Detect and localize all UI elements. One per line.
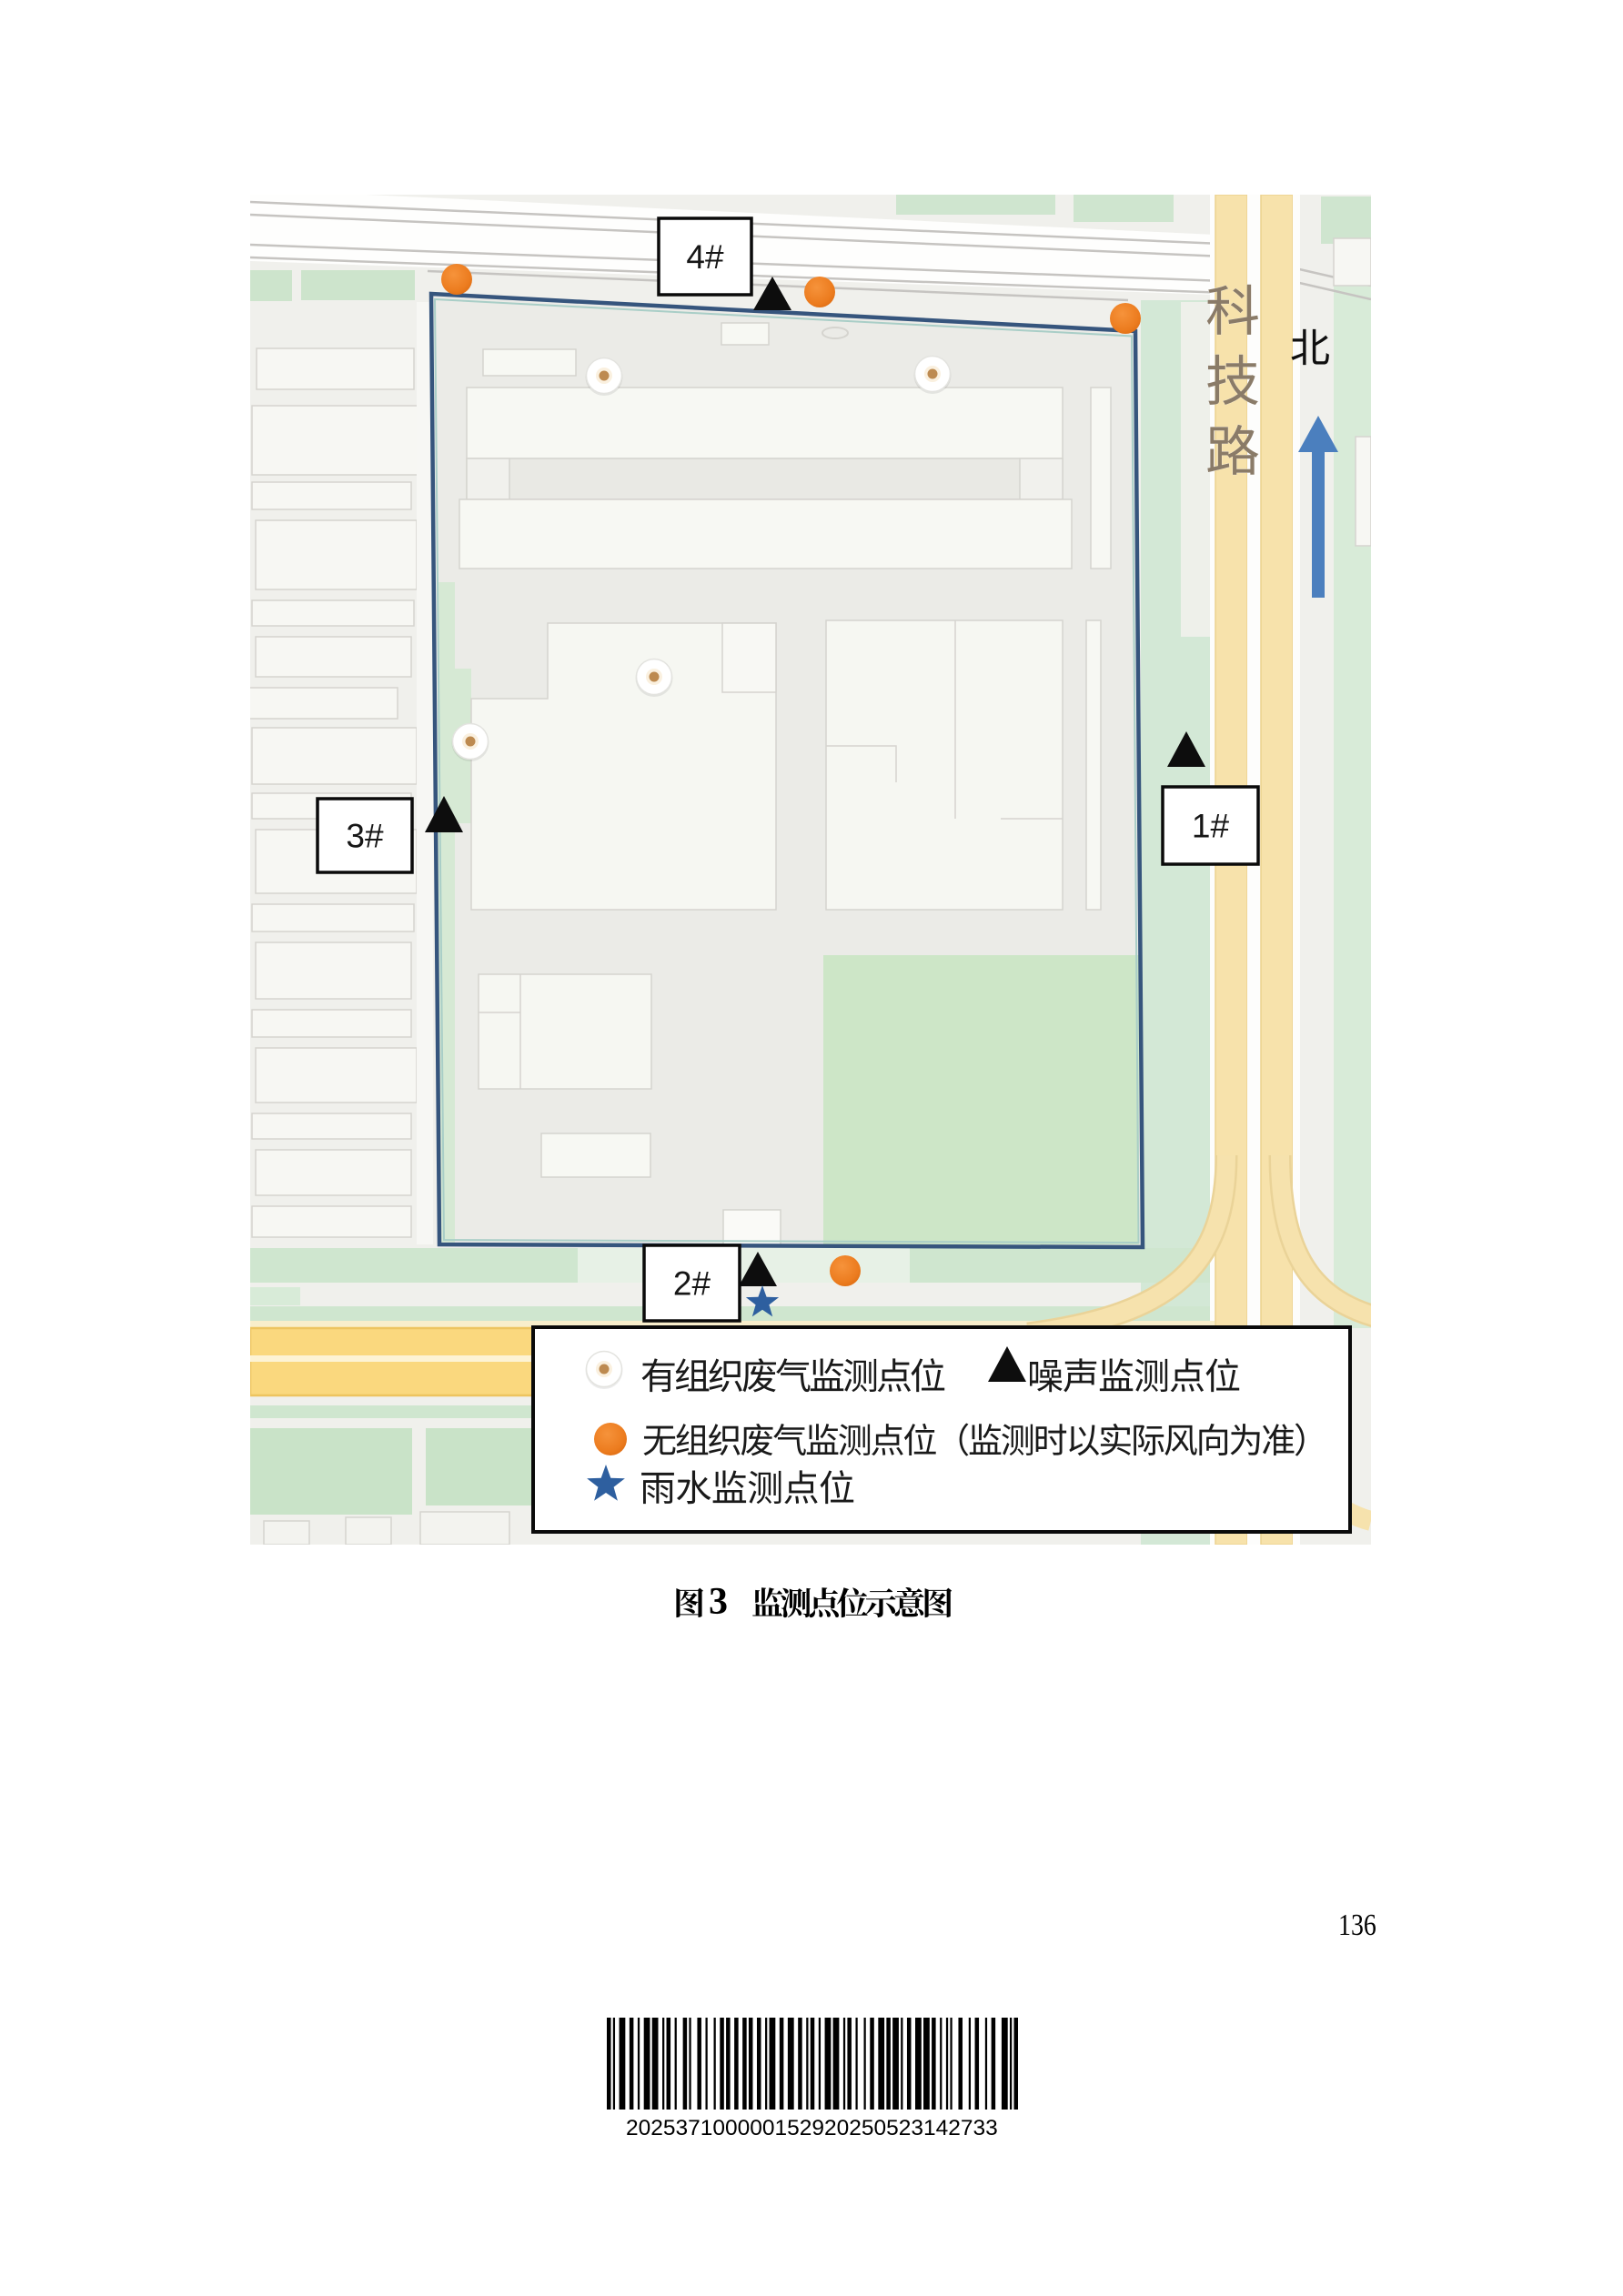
svg-text:4#: 4# <box>686 238 724 276</box>
svg-text:1#: 1# <box>1192 808 1230 845</box>
svg-text:3: 3 <box>709 1581 728 1623</box>
svg-text:202537100000152920250523142733: 202537100000152920250523142733 <box>626 2116 998 2140</box>
svg-text:2#: 2# <box>673 1265 711 1303</box>
svg-text:3#: 3# <box>346 818 384 855</box>
